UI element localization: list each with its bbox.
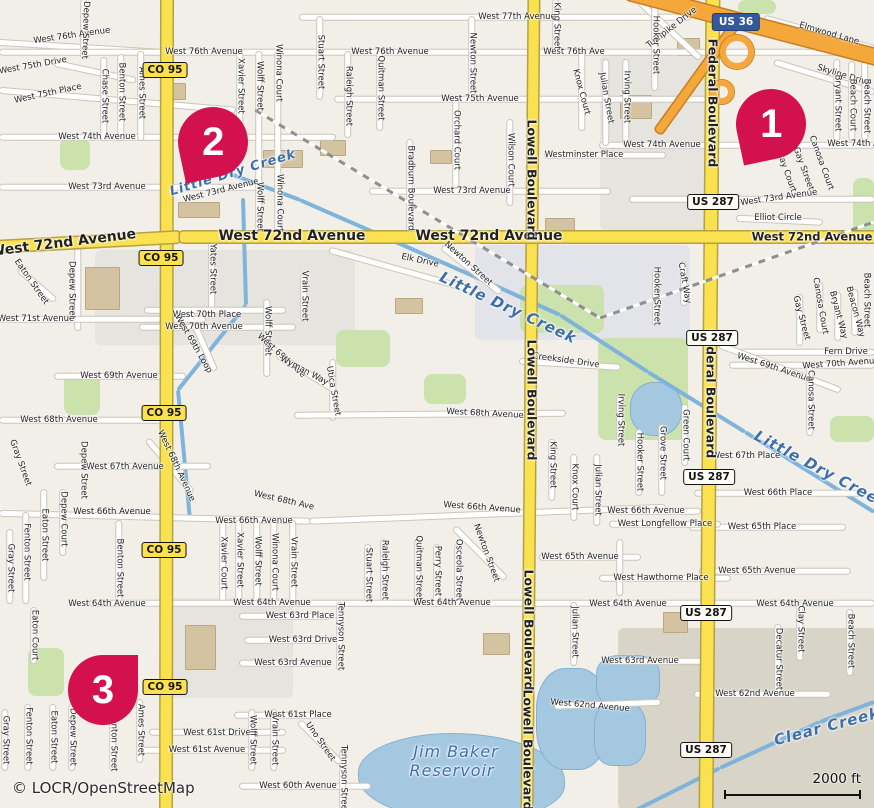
street-label: West 60th Avenue xyxy=(259,782,336,791)
street-label: Wilson Court xyxy=(506,133,515,187)
street-label: Stuart Street xyxy=(364,548,373,603)
building xyxy=(395,298,423,314)
street-label: Federal Boulevard xyxy=(704,330,717,459)
street-label: Osceola Street xyxy=(454,539,463,601)
street-label: Lowell Boulevard xyxy=(525,120,538,241)
route-shield-us287: US 287 xyxy=(680,742,732,758)
street-label: Hooker Street xyxy=(652,267,661,326)
street-label: West 76th Avenue xyxy=(165,48,242,57)
street-label: Bryant Street xyxy=(833,75,842,132)
street-label: Clay Street xyxy=(796,605,805,652)
street-label: Quitman Street xyxy=(414,535,423,600)
street-label: Julian Street xyxy=(593,464,602,516)
street-label: Tennyson Street xyxy=(336,602,345,670)
street-label: West 66th Avenue xyxy=(215,517,292,526)
park-area xyxy=(830,416,874,442)
street-label: West 66th Avenue xyxy=(73,508,150,517)
street-label: Depew Court xyxy=(59,491,68,546)
street-label: West 76th Avenue xyxy=(33,26,111,45)
street-label: Wolff Street xyxy=(248,715,257,765)
street-label: Uno Street xyxy=(304,721,337,763)
street-label: West 74th Avenue xyxy=(623,141,700,150)
street-label: West 64th Avenue xyxy=(589,600,666,609)
street-label: Bradburn Boulevard xyxy=(406,145,415,230)
route-shield-co95: CO 95 xyxy=(142,542,187,558)
street-label: Ames Street xyxy=(136,704,145,756)
route-shield-us287: US 287 xyxy=(686,330,738,346)
street-label: Wolff Street xyxy=(255,61,264,111)
street-label: Utica Street xyxy=(324,365,341,416)
street-label: Xavier Street xyxy=(235,532,244,588)
street-label: West 70th Avenue xyxy=(802,357,874,371)
street-label: Elk Drive xyxy=(401,253,440,269)
street-label: Vrain Street xyxy=(289,537,298,588)
street-label: Eaton Court xyxy=(30,610,39,661)
street-label: Chase Street xyxy=(100,69,109,124)
marker-number: 2 xyxy=(202,120,224,165)
route-shield-co95: CO 95 xyxy=(142,405,187,421)
street-label: Canosa Street xyxy=(806,370,815,430)
street-label: West 64th Avenue xyxy=(233,599,310,608)
building xyxy=(483,633,510,655)
map-attribution: © LOCR/OpenStreetMap xyxy=(12,779,195,797)
street-label: Beach Street xyxy=(862,273,871,328)
scale-line-icon xyxy=(724,790,861,799)
street-label: West 63rd Avenue xyxy=(601,657,678,666)
street-label: Green Court xyxy=(681,409,690,461)
street-label: West 75th Drive xyxy=(0,56,67,76)
street-label: West 69th Avenue xyxy=(80,372,157,381)
street-label: West 63rd Drive xyxy=(269,636,338,645)
route-shield-us287: US 287 xyxy=(687,194,739,210)
street-label: West 73rd Avenue xyxy=(433,187,510,196)
street-label: Winona Court xyxy=(274,44,283,102)
street-label: Eaton Street xyxy=(12,258,49,306)
street-label: Irving Street xyxy=(622,71,631,124)
route-shield-co95: CO 95 xyxy=(139,250,184,266)
street-label: Westminster Place xyxy=(545,151,624,160)
park-area xyxy=(424,374,466,404)
street-label: Canosa Court xyxy=(811,277,829,335)
building xyxy=(85,267,120,310)
street-label: Depew Street xyxy=(67,261,76,319)
street-label: West 72nd Avenue xyxy=(415,229,562,243)
street-label: Lowell Boulevard xyxy=(522,570,535,691)
street-label: King Street xyxy=(552,2,561,49)
street-label: West 77th Avenue xyxy=(478,13,555,22)
street-label: Fenton Street xyxy=(24,707,33,765)
street-label: Wolff Street xyxy=(253,536,262,586)
water-label: Reservoir xyxy=(410,763,495,779)
street-label: Winona Court xyxy=(270,533,279,591)
street-label: Gay Street xyxy=(791,295,811,341)
park-area xyxy=(738,0,776,14)
map-marker-3[interactable]: 3 xyxy=(68,655,138,725)
street-label: Benton Street xyxy=(115,539,124,598)
street-label: West 61st Drive xyxy=(183,729,251,738)
street-label: Quitman Street xyxy=(376,55,385,120)
motorway-ramp-loop xyxy=(720,35,754,69)
street-label: West 68th Ave xyxy=(253,490,315,512)
scale-label: 2000 ft xyxy=(724,771,861,787)
street-label: Fern Drive xyxy=(824,348,868,357)
street-label: Federal Boulevard xyxy=(706,39,719,168)
street-label: West 64th Avenue xyxy=(68,600,145,609)
street-label: West 76th Avenue xyxy=(351,48,428,57)
street-label: West 64th Avenue xyxy=(413,599,490,608)
street-label: Beach Court xyxy=(848,79,857,131)
street-label: Yates Street xyxy=(208,244,217,295)
street-label: West 68th Avenue xyxy=(20,416,97,425)
street-label: Creekside Drive xyxy=(532,352,600,370)
street-label: West 63rd Avenue xyxy=(254,659,331,668)
street-label: Depew Street xyxy=(80,1,91,59)
street-label: West 71st Avenue xyxy=(0,315,74,324)
street-label: King Street xyxy=(548,441,557,488)
street-label: Depew Street xyxy=(79,441,88,499)
street-label: Irving Street xyxy=(616,394,625,447)
street-label: West 75th Avenue xyxy=(441,95,518,104)
water-label: Jim Baker xyxy=(413,744,498,760)
street-label: Knox Court xyxy=(570,464,579,511)
street-label: West 74th Avenue xyxy=(58,133,135,142)
street-label: Wolff Street xyxy=(255,182,264,232)
route-shield-us287: US 287 xyxy=(680,605,732,621)
street-label: Elliot Circle xyxy=(754,214,802,223)
route-shield-co95: CO 95 xyxy=(143,679,188,695)
street-label: Wyman Way xyxy=(279,355,330,387)
route-shield-us36: US 36 xyxy=(712,13,760,31)
marker-number: 1 xyxy=(760,102,782,147)
street-label: West 73rd Avenue xyxy=(68,183,145,192)
street-label: Vrain Street xyxy=(300,271,309,322)
street-label: Gray Street xyxy=(1,716,10,765)
park-area xyxy=(336,330,390,367)
street-label: Beach Street xyxy=(862,79,871,134)
street-label: Xavier Court xyxy=(219,536,228,589)
street-label: West 72nd Avenue xyxy=(752,231,873,243)
street-label: West 74th Ave xyxy=(827,140,874,149)
street-label: West 65th Place xyxy=(728,523,796,532)
street-label: Knox Court xyxy=(571,68,591,116)
map-canvas[interactable]: © LOCR/OpenStreetMap 2000 ft West 77th A… xyxy=(0,0,874,808)
street-label: Gray Street xyxy=(8,439,33,488)
street-label: Tennyson Street xyxy=(339,745,348,808)
street-label: Hooker Street xyxy=(635,433,644,492)
street-label: Lowell Boulevard xyxy=(521,690,534,808)
street-road xyxy=(335,97,705,102)
street-label: Orchard Court xyxy=(452,110,461,170)
street-label: Hooker Street xyxy=(651,16,660,75)
street-label: West 62nd Avenue xyxy=(715,690,794,699)
street-label: West 63rd Place xyxy=(266,612,334,621)
street-label: Gray Street xyxy=(6,544,15,593)
street-label: Eaton Street xyxy=(49,710,58,763)
marker-number: 3 xyxy=(92,668,114,713)
route-shield-co95: CO 95 xyxy=(143,62,188,78)
street-label: West 61st Avenue xyxy=(169,746,245,755)
street-label: Raleigh Street xyxy=(380,540,389,600)
street-road xyxy=(618,540,623,595)
street-label: Stuart Street xyxy=(316,35,325,90)
street-label: Lowell Boulevard xyxy=(525,340,538,461)
building xyxy=(185,625,216,670)
street-label: West 66th Place xyxy=(744,489,812,498)
street-label: West 65th Avenue xyxy=(718,567,795,576)
scale-bar: 2000 ft xyxy=(724,771,861,799)
street-label: Perry Street xyxy=(433,546,442,596)
street-label: Vrain Street xyxy=(270,715,279,766)
route-shield-us287: US 287 xyxy=(683,469,735,485)
street-label: Depew Street xyxy=(68,708,77,766)
street-label: West 69th Avenue xyxy=(736,352,812,384)
street-label: Winona Court xyxy=(275,174,284,232)
street-label: West 67th Avenue xyxy=(86,463,163,472)
street-label: Decatur Street xyxy=(774,628,783,690)
street-label: Grove Street xyxy=(658,426,667,480)
street-label: West 68th Avenue xyxy=(446,408,524,421)
street-label: West 65th Avenue xyxy=(541,553,618,562)
street-label: Benton Street xyxy=(117,63,126,122)
street-label: Xavier Street xyxy=(236,58,245,114)
street-label: Raleigh Street xyxy=(344,66,353,126)
street-label: Julian Street xyxy=(570,606,579,658)
building xyxy=(430,150,452,164)
street-label: West 67th Place xyxy=(712,452,780,461)
building xyxy=(170,83,186,100)
street-label: West 66th Avenue xyxy=(607,507,684,516)
street-label: West Hawthorne Place xyxy=(613,574,708,583)
street-label: West 72nd Avenue xyxy=(218,229,365,243)
street-label: Newton Street xyxy=(468,33,477,94)
street-label: Beach Street xyxy=(846,614,855,669)
street-label: Fenton Street xyxy=(22,523,31,581)
street-label: West Longfellow Place xyxy=(618,520,713,529)
park-area xyxy=(60,138,90,170)
street-label: Eaton Street xyxy=(40,508,49,561)
